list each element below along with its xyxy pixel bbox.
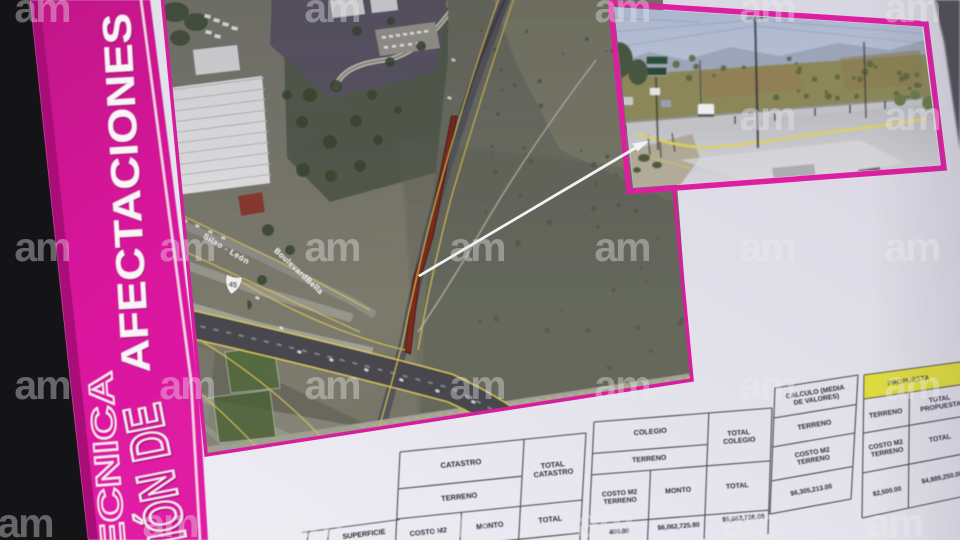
svg-text:am: am	[594, 362, 649, 408]
svg-text:am: am	[304, 0, 359, 31]
svg-text:am: am	[449, 362, 504, 408]
svg-text:am: am	[14, 224, 69, 270]
svg-text:am: am	[884, 362, 939, 408]
svg-text:am: am	[449, 224, 504, 270]
svg-text:am: am	[594, 224, 649, 270]
svg-text:am: am	[722, 500, 777, 540]
svg-text:am: am	[159, 362, 214, 408]
svg-text:am: am	[739, 93, 794, 139]
svg-text:am: am	[14, 362, 69, 408]
svg-text:am: am	[159, 224, 214, 270]
svg-text:am: am	[287, 500, 342, 540]
svg-text:am: am	[739, 224, 794, 270]
svg-text:am: am	[739, 362, 794, 408]
svg-text:am: am	[432, 500, 487, 540]
svg-text:am: am	[142, 500, 197, 540]
svg-text:am: am	[884, 224, 939, 270]
svg-text:am: am	[14, 0, 69, 31]
svg-text:am: am	[884, 93, 939, 139]
svg-text:am: am	[884, 0, 939, 31]
svg-text:am: am	[739, 0, 794, 31]
svg-text:am: am	[0, 500, 53, 540]
svg-text:am: am	[304, 224, 359, 270]
svg-text:am: am	[867, 500, 922, 540]
svg-text:am: am	[577, 500, 632, 540]
svg-text:am: am	[304, 362, 359, 408]
svg-text:am: am	[594, 0, 649, 31]
